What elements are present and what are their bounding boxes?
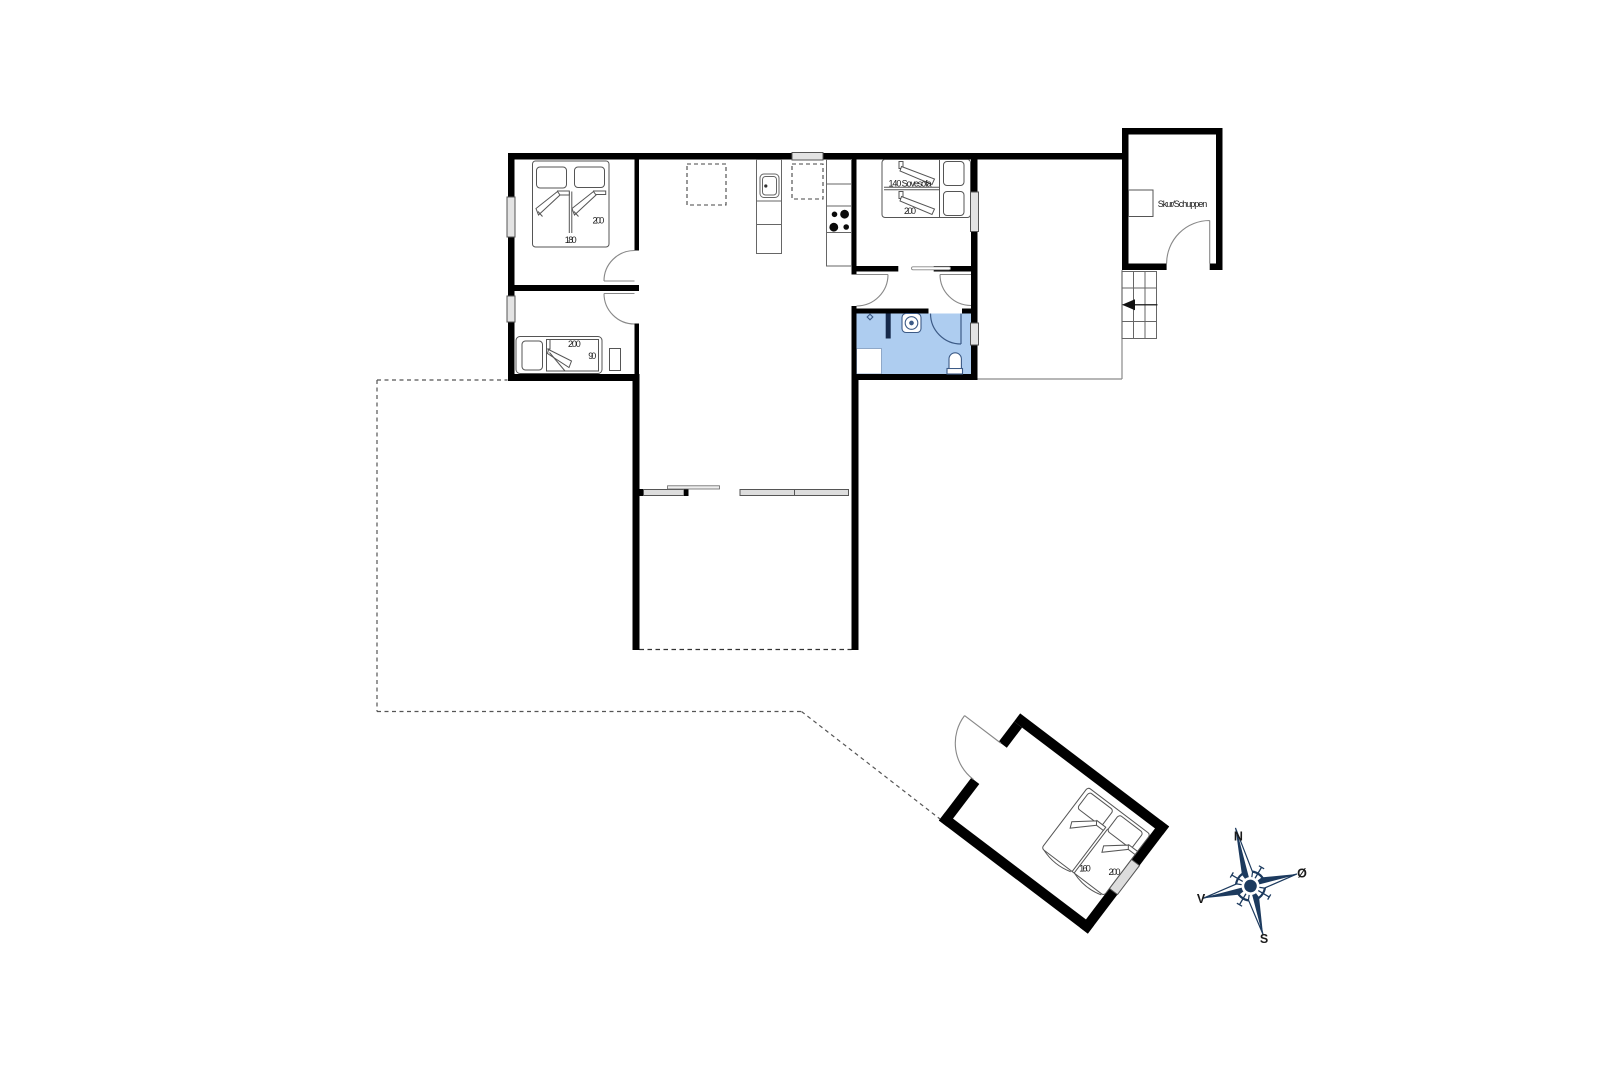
svg-text:160: 160 [1079, 864, 1091, 874]
svg-text:N: N [1234, 829, 1243, 843]
svg-text:Ø: Ø [1297, 867, 1307, 881]
svg-text:180: 180 [565, 235, 577, 245]
svg-text:Skur/Schuppen: Skur/Schuppen [1158, 199, 1208, 209]
svg-text:200: 200 [593, 216, 605, 226]
svg-text:90: 90 [588, 351, 596, 361]
svg-text:V: V [1197, 892, 1206, 906]
svg-text:200: 200 [568, 339, 581, 349]
svg-text:140 Sovesofa: 140 Sovesofa [889, 178, 932, 188]
svg-text:200: 200 [904, 206, 916, 216]
svg-text:S: S [1260, 932, 1268, 946]
svg-text:200: 200 [1109, 867, 1121, 877]
